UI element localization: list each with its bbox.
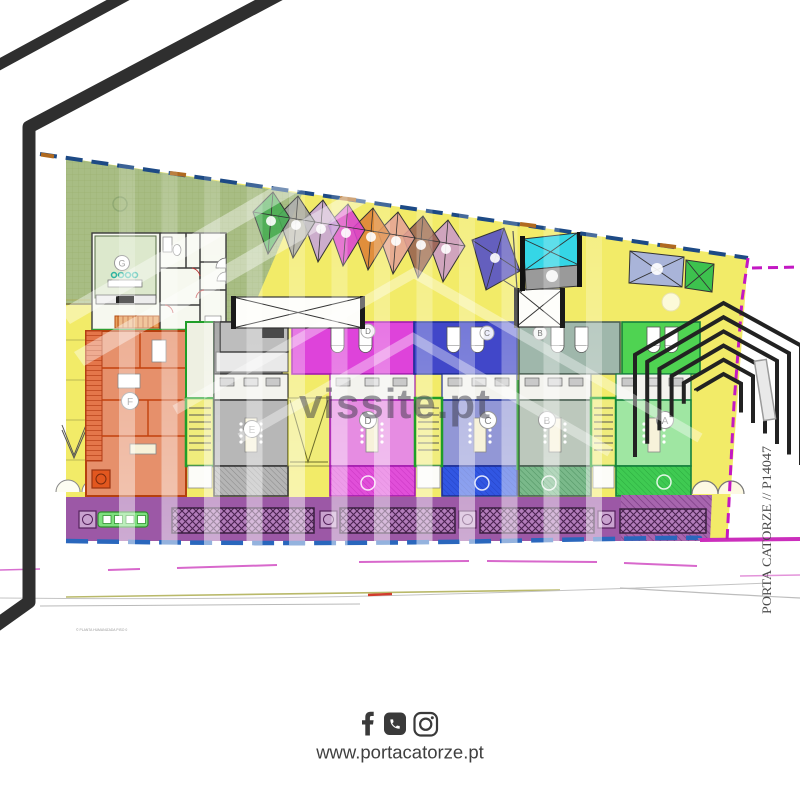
svg-text:vissite.pt: vissite.pt bbox=[299, 380, 491, 427]
svg-text:www.portacatorze.pt: www.portacatorze.pt bbox=[315, 742, 484, 763]
svg-text:B: B bbox=[537, 329, 542, 338]
svg-text:D: D bbox=[365, 327, 371, 336]
svg-text:C: C bbox=[484, 329, 490, 338]
svg-text:© PLANTA HUMANIZADA PISO 0: © PLANTA HUMANIZADA PISO 0 bbox=[76, 628, 127, 632]
svg-text:PORTA CATORZE // P14047: PORTA CATORZE // P14047 bbox=[759, 445, 774, 614]
